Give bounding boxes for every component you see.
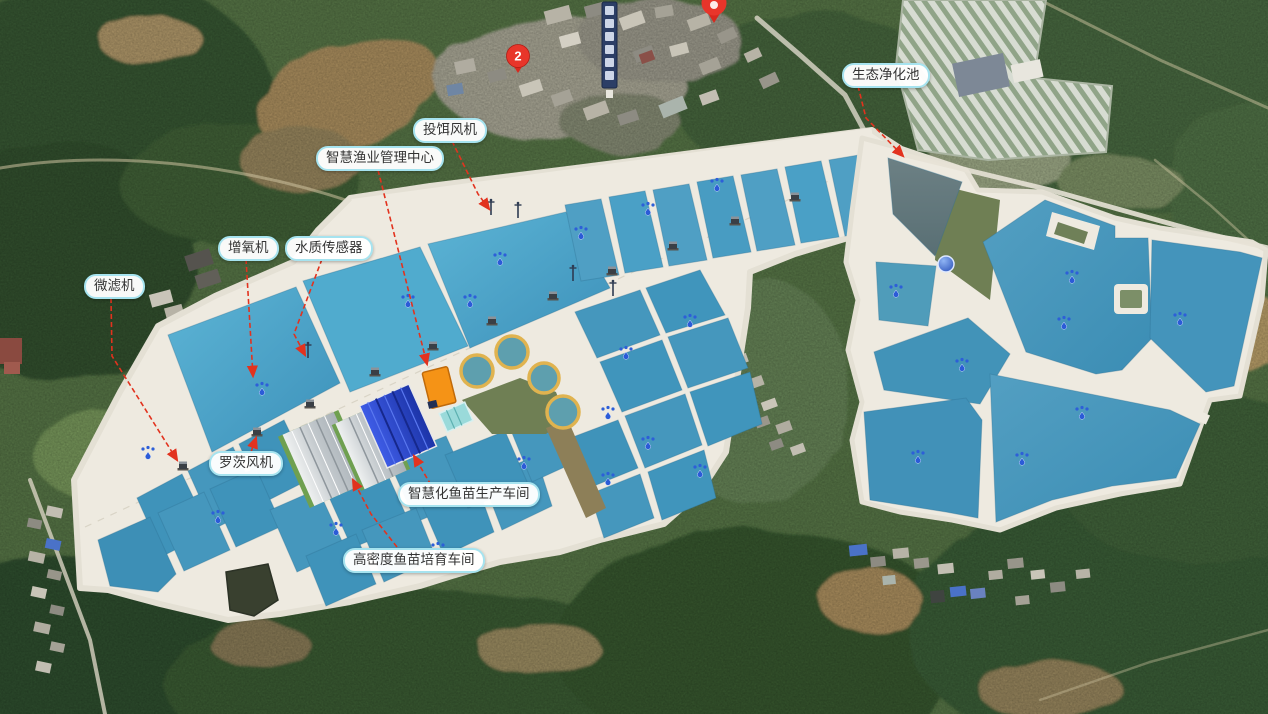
equip — [370, 368, 381, 377]
equip — [730, 217, 741, 226]
equip — [668, 242, 679, 251]
label-high-density-nursery: 高密度鱼苗培育车间 — [343, 548, 485, 573]
equip — [790, 193, 801, 202]
equip — [487, 317, 498, 326]
label-management-center: 智慧渔业管理中心 — [316, 146, 444, 171]
blue-dome-tank — [938, 256, 954, 272]
label-micro-filter: 微滤机 — [84, 274, 145, 299]
label-feeder-fan: 投饵风机 — [413, 118, 487, 143]
satellite-map-viewport: 2 微滤机 增氧机 水质传感器 智慧渔业管理中心 投饵风机 生态净化池 罗茨风机… — [0, 0, 1268, 714]
satellite-map: 2 — [0, 0, 1268, 714]
equip — [305, 400, 316, 409]
label-smart-fry-workshop: 智慧化鱼苗生产车间 — [398, 482, 540, 507]
label-water-sensor: 水质传感器 — [285, 236, 373, 261]
label-roots-blower: 罗茨风机 — [209, 451, 283, 476]
equip — [548, 292, 559, 301]
equip — [252, 428, 263, 437]
vertical-sign — [602, 2, 617, 98]
equip — [428, 342, 439, 351]
pin-number: 2 — [514, 49, 521, 64]
label-eco-purification-pond: 生态净化池 — [842, 63, 930, 88]
equip — [607, 267, 618, 276]
equip — [178, 462, 189, 471]
label-aerator: 增氧机 — [218, 236, 279, 261]
